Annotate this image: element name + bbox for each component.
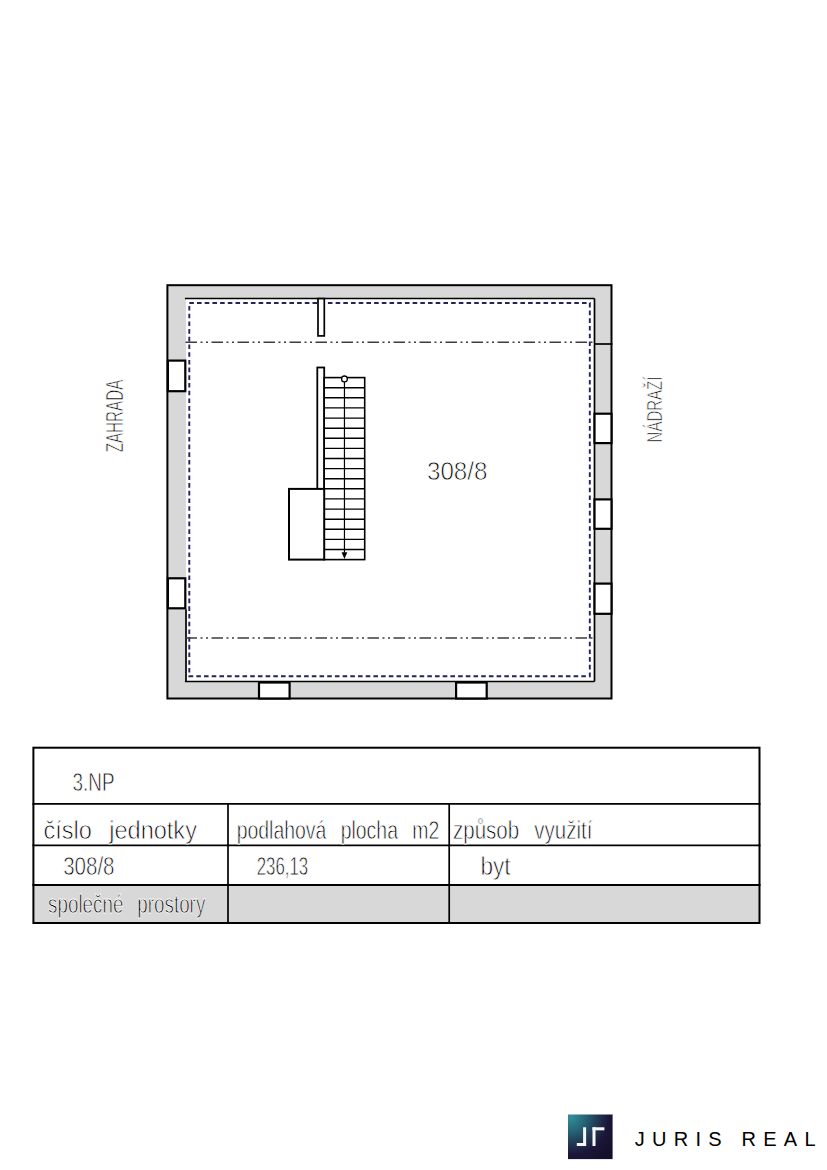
svg-text:ZAHRADA: ZAHRADA — [102, 379, 128, 452]
svg-text:236,13: 236,13 — [257, 851, 308, 881]
svg-text:společné prostory: společné prostory — [48, 889, 205, 919]
svg-text:podlahová plocha m2: podlahová plocha m2 — [237, 815, 440, 845]
svg-text:308/8: 308/8 — [427, 456, 487, 486]
svg-text:NÁDRAŽÍ: NÁDRAŽÍ — [642, 376, 667, 442]
svg-text:způsob využití: způsob využití — [453, 815, 593, 845]
svg-text:308/8: 308/8 — [63, 851, 114, 881]
svg-text:byt: byt — [480, 851, 511, 881]
svg-text:číslo jednotky: číslo jednotky — [44, 815, 197, 845]
svg-text:3.NP: 3.NP — [73, 767, 115, 797]
